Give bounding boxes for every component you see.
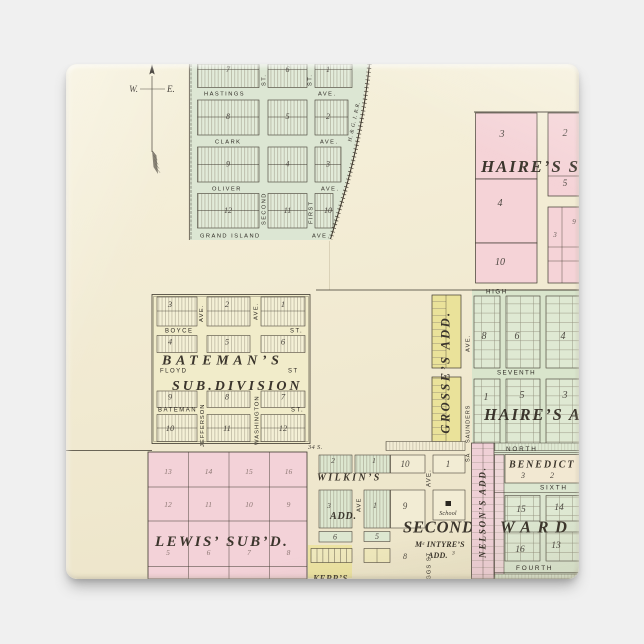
svg-text:5: 5 — [520, 390, 525, 401]
svg-text:AVE.: AVE. — [320, 140, 339, 146]
svg-text:GROSSE’S ADD.: GROSSE’S ADD. — [439, 310, 453, 433]
svg-text:1: 1 — [446, 459, 451, 469]
svg-text:6: 6 — [333, 533, 337, 542]
svg-text:11: 11 — [284, 206, 291, 215]
svg-text:AVE.: AVE. — [199, 304, 205, 322]
svg-text:13: 13 — [551, 541, 561, 551]
svg-text:WARD: WARD — [500, 518, 573, 537]
svg-text:10: 10 — [401, 459, 411, 469]
svg-text:SIXTH: SIXTH — [540, 485, 568, 492]
svg-text:NORTH: NORTH — [506, 446, 538, 453]
svg-text:School: School — [439, 511, 457, 517]
svg-text:13: 13 — [164, 467, 172, 476]
svg-text:AVE.: AVE. — [466, 334, 472, 352]
svg-text:34 S.: 34 S. — [307, 444, 323, 451]
svg-text:3: 3 — [499, 129, 505, 140]
svg-text:ST.: ST. — [262, 74, 268, 86]
svg-text:12: 12 — [164, 500, 172, 509]
svg-text:1: 1 — [372, 456, 376, 465]
svg-text:JEFFERSON: JEFFERSON — [200, 404, 206, 447]
svg-text:W.: W. — [129, 84, 138, 94]
svg-text:CLARK: CLARK — [215, 140, 241, 146]
svg-text:HAIRE’S SU: HAIRE’S SU — [480, 157, 579, 176]
svg-text:AVE.: AVE. — [254, 302, 260, 320]
svg-text:SECOND: SECOND — [403, 518, 475, 537]
svg-text:9: 9 — [226, 160, 230, 169]
svg-text:4: 4 — [561, 331, 566, 342]
svg-text:3: 3 — [552, 231, 557, 239]
svg-text:1: 1 — [373, 501, 377, 510]
svg-text:ST.: ST. — [291, 408, 304, 414]
svg-text:KERR’S: KERR’S — [312, 574, 348, 580]
svg-text:SEVENTH: SEVENTH — [497, 370, 536, 377]
svg-text:9: 9 — [287, 500, 291, 509]
svg-text:1: 1 — [484, 392, 489, 403]
svg-text:HASTINGS: HASTINGS — [204, 92, 245, 98]
svg-text:6: 6 — [515, 331, 520, 342]
svg-text:2: 2 — [563, 128, 568, 139]
svg-text:9: 9 — [572, 218, 576, 226]
svg-text:FIRST: FIRST — [309, 201, 315, 224]
svg-text:3: 3 — [520, 471, 525, 480]
svg-text:5: 5 — [375, 532, 379, 541]
svg-text:8: 8 — [482, 331, 487, 342]
svg-text:SECOND: SECOND — [262, 192, 268, 225]
svg-text:NELSON’S ADD.: NELSON’S ADD. — [478, 466, 488, 559]
svg-text:2: 2 — [326, 112, 330, 121]
svg-text:WASHINGTON: WASHINGTON — [255, 395, 261, 445]
svg-text:SA: SA — [466, 453, 472, 462]
svg-text:10: 10 — [245, 500, 253, 509]
svg-text:E.: E. — [166, 84, 175, 94]
svg-text:3: 3 — [167, 299, 172, 309]
svg-text:12: 12 — [279, 423, 288, 433]
svg-text:BENEDICT: BENEDICT — [508, 460, 575, 471]
svg-text:2: 2 — [550, 471, 554, 480]
svg-text:BATEMAN’S: BATEMAN’S — [161, 354, 284, 369]
svg-text:6: 6 — [286, 65, 290, 74]
svg-text:AVE: AVE — [357, 498, 363, 512]
svg-text:2: 2 — [331, 456, 335, 465]
svg-text:HIGH: HIGH — [486, 289, 508, 296]
svg-text:3: 3 — [562, 390, 568, 401]
svg-text:14: 14 — [554, 503, 564, 513]
svg-text:GRAND ISLAND: GRAND ISLAND — [200, 234, 261, 240]
svg-text:16: 16 — [515, 545, 525, 555]
svg-text:16: 16 — [285, 467, 293, 476]
svg-text:WILKIN’S: WILKIN’S — [317, 473, 382, 484]
svg-text:BATEMAN: BATEMAN — [158, 408, 197, 414]
svg-text:5: 5 — [225, 337, 229, 347]
svg-text:5: 5 — [286, 112, 290, 121]
svg-text:15: 15 — [245, 467, 253, 476]
svg-text:1: 1 — [326, 65, 330, 74]
svg-text:FLOYD: FLOYD — [160, 369, 188, 375]
svg-text:GRIGGS ST: GRIGGS ST — [427, 552, 433, 579]
svg-text:SAUNDERS: SAUNDERS — [466, 405, 472, 443]
svg-text:15: 15 — [516, 505, 526, 515]
svg-text:AVE.: AVE. — [427, 469, 433, 487]
svg-text:3: 3 — [326, 501, 331, 510]
svg-text:10: 10 — [495, 257, 505, 268]
svg-text:FOURTH: FOURTH — [516, 565, 553, 572]
svg-text:AVE.: AVE. — [318, 92, 337, 98]
svg-text:10: 10 — [166, 423, 175, 433]
svg-text:3: 3 — [325, 160, 330, 169]
svg-text:ST: ST — [288, 369, 299, 375]
svg-text:1: 1 — [281, 299, 285, 309]
svg-text:11: 11 — [205, 500, 212, 509]
svg-text:HAIRE’S A: HAIRE’S A — [483, 405, 579, 424]
svg-text:4: 4 — [286, 160, 290, 169]
svg-text:BOYCE: BOYCE — [165, 329, 194, 335]
svg-text:4: 4 — [498, 198, 503, 209]
svg-text:3: 3 — [451, 551, 455, 557]
svg-text:AVE.: AVE. — [312, 234, 331, 240]
svg-text:ST.: ST. — [308, 74, 314, 86]
svg-text:ST.: ST. — [290, 329, 303, 335]
svg-text:14: 14 — [205, 467, 213, 476]
svg-text:8: 8 — [226, 112, 230, 121]
svg-text:11: 11 — [223, 423, 231, 433]
svg-text:ADD.: ADD. — [329, 511, 357, 522]
svg-text:OLIVER: OLIVER — [212, 187, 242, 193]
svg-text:9: 9 — [403, 501, 408, 511]
svg-text:8: 8 — [403, 552, 407, 561]
svg-text:12: 12 — [224, 206, 232, 215]
svg-text:LEWIS’ SUB’D.: LEWIS’ SUB’D. — [154, 534, 289, 550]
svg-text:5: 5 — [563, 178, 568, 188]
svg-text:Mᶜ INTYRE’S: Mᶜ INTYRE’S — [414, 540, 465, 549]
svg-text:SUB.DIVISION: SUB.DIVISION — [172, 379, 303, 394]
